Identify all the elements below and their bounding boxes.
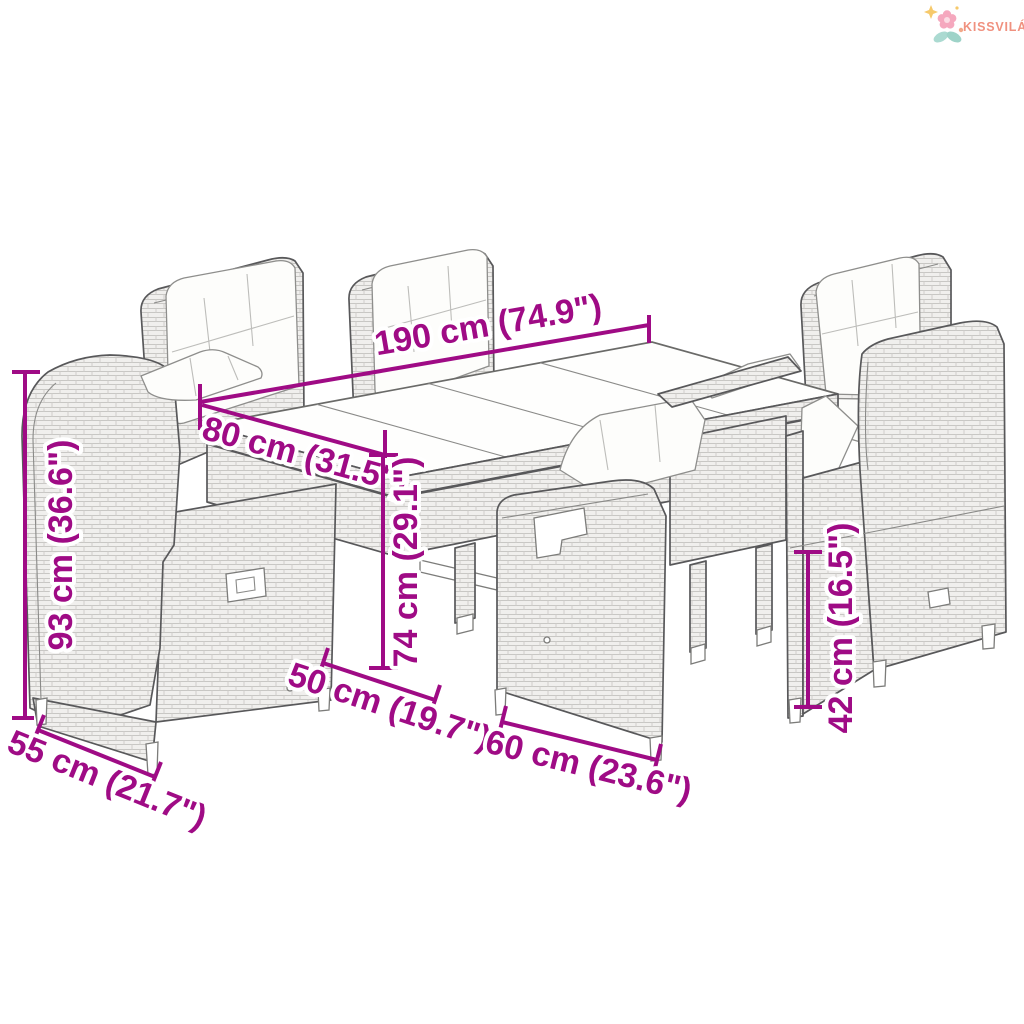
dimension-label-chair-back-height: 93 cm (36.6") — [42, 440, 80, 651]
dimension-label-seat-height: 42 cm (16.5") — [822, 523, 860, 734]
illustration-canvas: 190 cm (74.9") 80 cm (31.5") 74 cm (29.1… — [0, 0, 1024, 1024]
brand-name: KISSVILÁG — [963, 19, 1024, 34]
table-leg-left — [455, 543, 475, 623]
recline-latch — [928, 588, 950, 608]
chair-leg — [873, 660, 886, 687]
recline-latch — [226, 568, 266, 602]
chair-front-right-post — [786, 431, 803, 718]
dimension-label-table-height: 74 cm (29.1") — [387, 457, 425, 668]
flower-icon — [924, 5, 963, 45]
chair-front-right-back — [858, 321, 1006, 670]
dimension-label-seat-depth: 50 cm (19.7") — [283, 655, 495, 757]
sparkle-icon — [924, 5, 938, 19]
brand-logo: KISSVILÁG — [924, 5, 1024, 45]
chair-leg — [789, 698, 801, 723]
dimension-label-chair-front-width: 60 cm (23.6") — [482, 723, 696, 810]
chair-leg — [982, 624, 995, 649]
product-dimension-illustration: 190 cm (74.9") 80 cm (31.5") 74 cm (29.1… — [0, 0, 1024, 1024]
dimension-chair-front-width: 60 cm (23.6") — [482, 706, 696, 810]
